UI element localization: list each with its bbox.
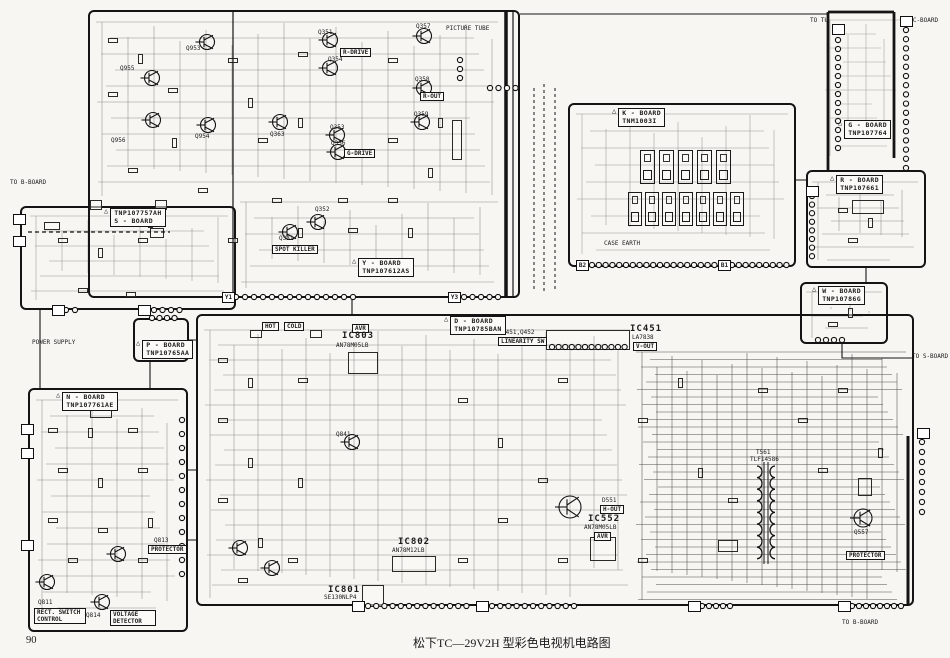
q955-label: Q955 (120, 66, 134, 72)
board-d-board-label: △D - BOARDTNP10785BAN (444, 316, 506, 335)
an78m12lb-label: AN78M12LB (392, 548, 425, 554)
component-box (248, 458, 253, 468)
connector-terminal (838, 601, 851, 612)
q352-label: Q352 (315, 207, 329, 213)
warning-triangle-icon: △ (104, 208, 108, 215)
board-label-line: TNP107661 (840, 185, 879, 193)
switch-module (628, 192, 642, 226)
board-p-board-label: △P - BOARDTNP10765AA (136, 340, 193, 359)
board-g-board-label: △G - BOARDTNP107764 (838, 120, 891, 139)
board-s-board-label: △TNP107757AHS - BOARD (104, 208, 166, 227)
component-box (218, 418, 228, 423)
component-box (310, 330, 322, 338)
component-box (828, 322, 838, 327)
connector-pin (919, 469, 924, 474)
component-box (428, 168, 433, 178)
component-box (90, 410, 112, 418)
connector-pin (919, 489, 924, 494)
component-box (258, 138, 268, 143)
component-box (138, 238, 148, 243)
component-box (458, 398, 468, 403)
board-name-box: P - BOARDTNP10765AA (142, 340, 193, 359)
switch-module (640, 150, 655, 184)
component-box (338, 198, 348, 203)
connector-y3: Y3 (448, 292, 461, 303)
diagram-caption: 松下TC—29V2H 型彩色电视机电路图 (413, 634, 611, 651)
board-name-box: R - BOARDTNP107661 (836, 175, 883, 194)
v-out-label: V-OUT (633, 342, 657, 351)
connector-y1: Y1 (222, 292, 235, 303)
connector-terminal (900, 16, 913, 27)
component-box (538, 478, 548, 483)
connector-terminal (21, 540, 34, 551)
page-number: 90 (26, 635, 37, 646)
component-box (88, 428, 93, 438)
avr-label: AVR (594, 532, 611, 541)
component-box (228, 58, 238, 63)
component-box (138, 54, 143, 64)
connector-terminal (52, 305, 65, 316)
la7838-label: LA7838 (632, 335, 654, 341)
component-box (126, 292, 136, 297)
switch-module (679, 192, 693, 226)
q953-label: Q953 (186, 46, 200, 52)
ic552-label: IC552 (588, 515, 620, 524)
voltage-detector-label: VOLTAGE DETECTOR (110, 610, 156, 626)
component-box (298, 52, 308, 57)
protector-label: PROTECTOR (846, 551, 885, 560)
connector-terminal (476, 601, 489, 612)
board-label-line: TNP10786G (822, 296, 861, 304)
component-box (718, 540, 738, 552)
ic803-label: IC803 (342, 332, 374, 341)
component-box (838, 208, 848, 213)
component-box (758, 388, 768, 393)
component-box (298, 378, 308, 383)
component-box (388, 198, 398, 203)
component-box (878, 448, 883, 458)
connector-terminal (806, 186, 819, 197)
to-tu-label: TO TU (810, 18, 828, 24)
component-box (558, 378, 568, 383)
connector-pin (919, 479, 924, 484)
rect-switch-control-label: RECT. SWITCH CONTROL (34, 608, 86, 624)
tlf14586-label: TLF14586 (750, 457, 779, 463)
connector-pin (919, 449, 924, 454)
board-y-board-label: △Y - BOARDTNP107612AS (352, 258, 414, 277)
an78m05lb-label: AN78M05LB (336, 343, 369, 349)
connector-terminal (138, 305, 151, 316)
board-label-line: S - BOARD (114, 218, 161, 226)
board-name-box: K - BOARDTNM1003I (618, 108, 665, 127)
component-box (348, 352, 378, 374)
board-name-box: D - BOARDTNP10785BAN (450, 316, 505, 335)
component-box (678, 378, 683, 388)
component-box (138, 558, 148, 563)
component-box (150, 228, 164, 238)
spot-killer-label: SPOT KILLER (272, 245, 318, 254)
component-box (98, 478, 103, 488)
connector-b2: B2 (576, 260, 589, 271)
component-box (128, 428, 138, 433)
component-box (108, 92, 118, 97)
board-name-box: N - BOARDTNP107761AE (62, 392, 117, 411)
component-box (868, 218, 873, 228)
warning-triangle-icon: △ (612, 108, 616, 115)
component-box (458, 558, 468, 563)
connector-pin (919, 509, 924, 514)
board-name-box: G - BOARDTNP107764 (844, 120, 891, 139)
board-d-board (196, 314, 914, 606)
component-box (248, 378, 253, 388)
q841-label: Q841 (336, 432, 350, 438)
component-box (798, 418, 808, 423)
component-box (58, 468, 68, 473)
h-out-label: H-OUT (600, 505, 624, 514)
connector-terminal (13, 236, 26, 247)
component-box (546, 330, 630, 350)
ic802-label: IC802 (398, 538, 430, 547)
component-box (168, 88, 178, 93)
switch-module (696, 192, 710, 226)
component-box (218, 358, 228, 363)
g-drive-label: G-DRIVE (344, 149, 375, 158)
d551-label: D551 (602, 498, 616, 504)
q357-label: Q357 (416, 24, 430, 30)
component-box (848, 238, 858, 243)
warning-triangle-icon: △ (838, 120, 842, 127)
warning-triangle-icon: △ (136, 340, 140, 347)
board-label-line: TNP107612AS (362, 268, 409, 276)
to-s-board-label: TO S-BOARD (912, 354, 948, 360)
q557-label: Q557 (854, 530, 868, 536)
component-box (498, 438, 503, 448)
board-n-board (28, 388, 188, 632)
connector-terminal (832, 24, 845, 35)
component-box (148, 518, 153, 528)
ic451-label: IC451 (630, 325, 662, 334)
component-box (452, 120, 462, 160)
component-box (838, 388, 848, 393)
switch-module (645, 192, 659, 226)
board-label-line: TNP107761AE (66, 402, 113, 410)
component-box (392, 556, 436, 572)
power-supply-label: POWER SUPPLY (32, 340, 75, 346)
component-box (348, 228, 358, 233)
switch-module (716, 150, 731, 184)
connector-pin (919, 459, 924, 464)
component-box (272, 198, 282, 203)
schematic-page: 松下TC—29V2H 型彩色电视机电路图 90 △Y - BOARDTNP107… (0, 0, 950, 658)
component-box (858, 478, 872, 496)
switch-module (730, 192, 744, 226)
warning-triangle-icon: △ (56, 392, 60, 399)
component-box (44, 222, 60, 230)
connector-terminal (688, 601, 701, 612)
board-label-line: TNP10785BAN (454, 326, 501, 334)
component-box (288, 558, 298, 563)
to-b-board-label: TO B-BOARD (842, 620, 878, 626)
component-box (298, 118, 303, 128)
component-box (108, 38, 118, 43)
component-box (78, 288, 88, 293)
q363-label: Q363 (270, 132, 284, 138)
q351-label: Q351 (318, 30, 332, 36)
component-box (238, 578, 248, 583)
switch-module (659, 150, 674, 184)
warning-triangle-icon: △ (352, 258, 356, 265)
warning-triangle-icon: △ (812, 286, 816, 293)
board-label-line: TNM1003I (622, 118, 661, 126)
component-box (438, 118, 443, 128)
component-box (558, 558, 568, 563)
q358-label: Q358 (415, 77, 429, 83)
board-name-box: TNP107757AHS - BOARD (110, 208, 165, 227)
component-box (128, 168, 138, 173)
component-box (98, 528, 108, 533)
q451-q452-label: Q451,Q452 (502, 330, 535, 336)
connector-terminal (352, 601, 365, 612)
switch-module (662, 192, 676, 226)
to-b-board-label: TO B-BOARD (10, 180, 46, 186)
cold-label: COLD (284, 322, 304, 331)
component-box (228, 238, 238, 243)
q331-label: Q331 (279, 236, 293, 242)
component-box (98, 248, 103, 258)
q813-label: Q813 (154, 538, 168, 544)
component-box (198, 188, 208, 193)
component-box (298, 228, 303, 238)
board-label-line: TNP107764 (848, 130, 887, 138)
connector-terminal (21, 424, 34, 435)
board-n-board-label: △N - BOARDTNP107761AE (56, 392, 118, 411)
component-box (498, 518, 508, 523)
picture-tube-label: PICTURE TUBE (446, 26, 489, 32)
component-box (638, 558, 648, 563)
switch-module (713, 192, 727, 226)
connector-pin (919, 439, 924, 444)
case-earth-label: CASE EARTH (604, 241, 640, 247)
component-box (852, 200, 884, 214)
an78m05lb-label: AN78M05LB (584, 525, 617, 531)
board-k-board-label: △K - BOARDTNM1003I (612, 108, 665, 127)
component-box (58, 238, 68, 243)
board-name-box: W - BOARDTNP10786G (818, 286, 865, 305)
component-box (638, 418, 648, 423)
component-box (248, 98, 253, 108)
connector-pin (919, 499, 924, 504)
board-name-box: Y - BOARDTNP107612AS (358, 258, 413, 277)
component-box (48, 428, 58, 433)
component-box (728, 498, 738, 503)
board-r-board-label: △R - BOARDTNP107661 (830, 175, 883, 194)
switch-module (697, 150, 712, 184)
connector-terminal (13, 214, 26, 225)
q954-label: Q954 (195, 134, 209, 140)
component-box (138, 468, 148, 473)
q354-label: Q354 (328, 57, 342, 63)
q811-label: Q811 (38, 600, 52, 606)
component-box (172, 138, 177, 148)
component-box (68, 558, 78, 563)
warning-triangle-icon: △ (444, 316, 448, 323)
component-box (698, 468, 703, 478)
q956-label: Q956 (111, 138, 125, 144)
connector-b1: B1 (718, 260, 731, 271)
r-drive-label: R-DRIVE (340, 48, 371, 57)
component-box (848, 308, 853, 318)
component-box (388, 58, 398, 63)
connector-terminal (21, 448, 34, 459)
board-label-line: TNP10765AA (146, 350, 189, 358)
component-box (298, 478, 303, 488)
component-box (818, 468, 828, 473)
q356-label: Q356 (331, 141, 345, 147)
component-box (250, 330, 262, 338)
connector-terminal (917, 428, 930, 439)
hot-label: HOT (262, 322, 279, 331)
picture-tube-dashed-lines (534, 84, 555, 292)
component-box (90, 200, 102, 210)
component-box (362, 585, 384, 607)
component-box (48, 518, 58, 523)
warning-triangle-icon: △ (830, 175, 834, 182)
component-box (218, 498, 228, 503)
component-box (408, 228, 413, 238)
q359-label: Q359 (414, 112, 428, 118)
switch-module (678, 150, 693, 184)
r-out-label: R-OUT (420, 92, 444, 101)
component-box (258, 538, 263, 548)
board-w-board-label: △W - BOARDTNP10786G (812, 286, 865, 305)
q814-label: Q814 (86, 613, 100, 619)
q353-label: Q353 (330, 125, 344, 131)
linearity-sw-label: LINEARITY SW (498, 337, 547, 346)
component-box (388, 138, 398, 143)
protector-label: PROTECTOR (148, 545, 187, 554)
board-k-board (568, 103, 796, 267)
